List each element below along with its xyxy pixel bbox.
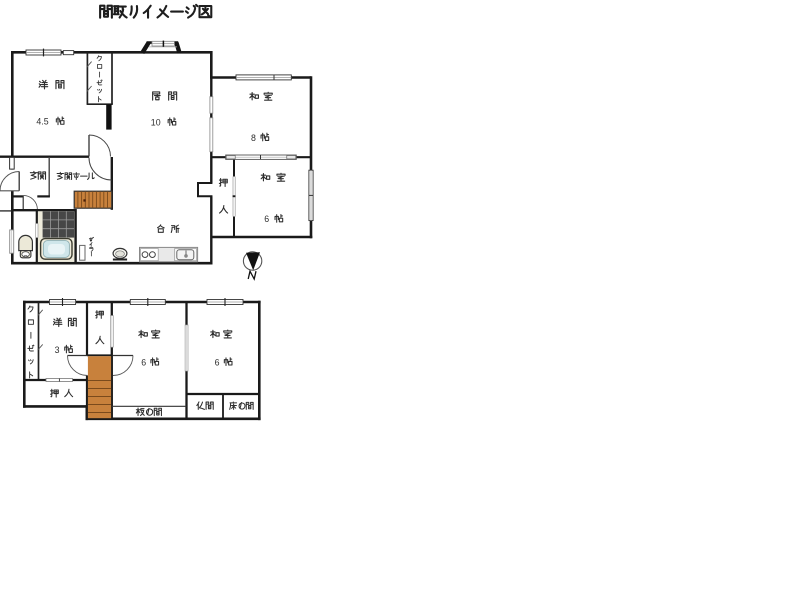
svg-text:6: 6 bbox=[215, 357, 220, 367]
svg-text:4.5: 4.5 bbox=[36, 117, 48, 127]
svg-text:6: 6 bbox=[141, 357, 146, 367]
svg-text:8: 8 bbox=[251, 133, 256, 143]
svg-text:10: 10 bbox=[151, 118, 161, 128]
svg-text:3: 3 bbox=[55, 345, 60, 355]
svg-text:6: 6 bbox=[264, 214, 269, 224]
